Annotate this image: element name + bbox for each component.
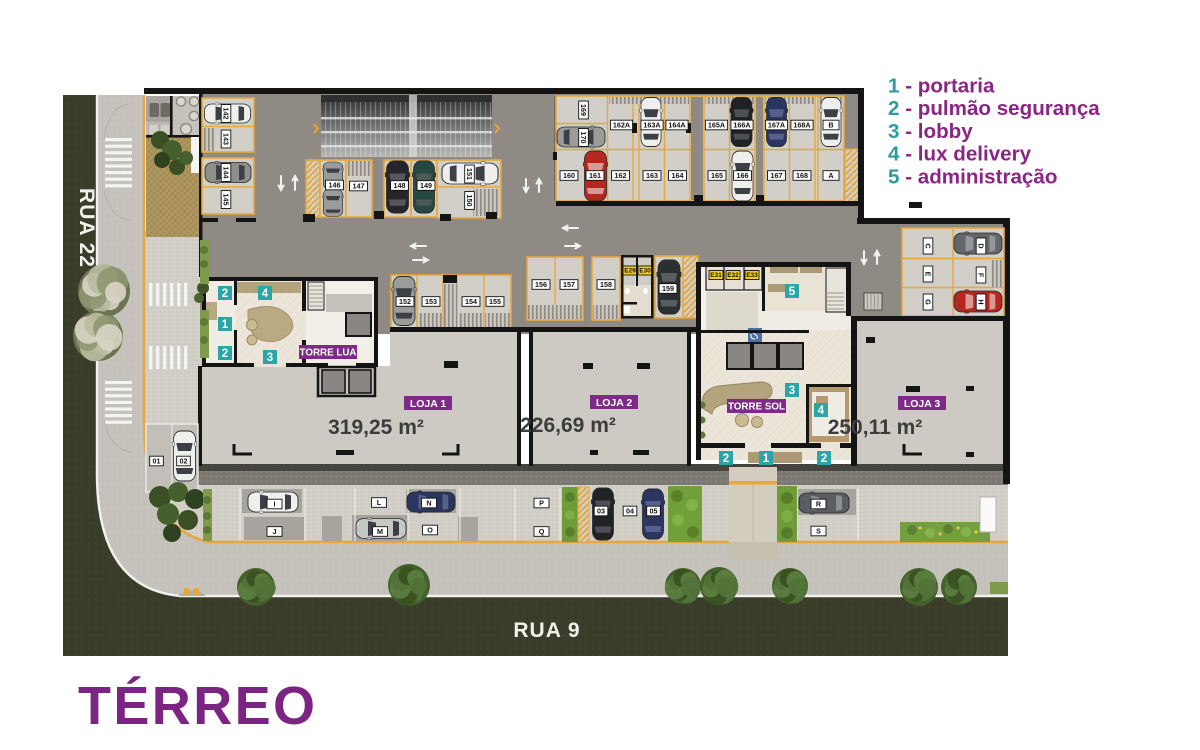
svg-text:144: 144 [222, 167, 231, 179]
svg-text:C: C [924, 243, 933, 248]
svg-text:B: B [828, 120, 833, 129]
svg-text:D: D [977, 243, 986, 248]
svg-text:N: N [426, 498, 431, 507]
svg-text:01: 01 [153, 456, 161, 465]
svg-text:LOJA 1: LOJA 1 [410, 398, 447, 410]
svg-text:3: 3 [789, 385, 795, 397]
svg-text:E31: E31 [710, 272, 722, 279]
svg-text:164: 164 [672, 171, 684, 180]
svg-text:F: F [977, 273, 986, 278]
svg-text:1: 1 [763, 453, 770, 465]
svg-text:04: 04 [626, 506, 634, 515]
svg-text:142: 142 [222, 108, 231, 120]
svg-text:163A: 163A [643, 120, 660, 129]
svg-text:150: 150 [465, 195, 474, 207]
svg-text:1 - portaria: 1 - portaria [888, 75, 995, 98]
svg-text:4 - lux delivery: 4 - lux delivery [888, 143, 1032, 166]
svg-text:166A: 166A [733, 120, 750, 129]
svg-text:P: P [539, 498, 544, 507]
svg-text:167A: 167A [768, 120, 785, 129]
svg-text:02: 02 [180, 456, 188, 465]
svg-text:L: L [377, 498, 382, 507]
svg-text:156: 156 [535, 280, 547, 289]
svg-text:TÉRREO: TÉRREO [78, 676, 317, 736]
svg-text:E: E [924, 272, 933, 277]
svg-text:2: 2 [222, 348, 228, 360]
svg-text:168: 168 [796, 171, 808, 180]
svg-text:154: 154 [465, 297, 477, 306]
svg-text:R: R [816, 499, 822, 508]
svg-text:LOJA 3: LOJA 3 [904, 398, 941, 410]
svg-text:167: 167 [771, 171, 783, 180]
svg-text:160: 160 [563, 171, 575, 180]
svg-text:J: J [273, 527, 277, 536]
svg-text:M: M [377, 527, 383, 536]
svg-text:149: 149 [420, 181, 432, 190]
svg-text:TORRE LUA: TORRE LUA [300, 348, 357, 359]
svg-text:05: 05 [650, 506, 658, 515]
svg-text:3 - lobby: 3 - lobby [888, 120, 973, 143]
svg-text:169: 169 [579, 104, 588, 116]
svg-text:155: 155 [489, 297, 501, 306]
svg-text:146: 146 [329, 180, 341, 189]
svg-text:1: 1 [222, 319, 229, 331]
svg-text:5 - administração: 5 - administração [888, 165, 1057, 188]
svg-text:161: 161 [589, 171, 601, 180]
svg-text:163: 163 [646, 171, 658, 180]
svg-text:153: 153 [425, 297, 437, 306]
svg-text:TORRE SOL: TORRE SOL [728, 402, 785, 413]
svg-text:143: 143 [222, 133, 231, 145]
svg-text:2: 2 [821, 453, 827, 465]
svg-text:03: 03 [597, 506, 605, 515]
svg-text:H: H [977, 299, 986, 304]
svg-text:2: 2 [723, 453, 729, 465]
svg-text:152: 152 [399, 297, 411, 306]
svg-text:A: A [828, 171, 833, 180]
svg-text:4: 4 [262, 288, 269, 300]
svg-text:4: 4 [818, 405, 825, 417]
svg-text:319,25 m²: 319,25 m² [328, 416, 424, 439]
svg-text:2: 2 [222, 288, 228, 300]
svg-text:170: 170 [579, 132, 588, 144]
svg-text:I: I [274, 499, 276, 508]
svg-text:165: 165 [711, 171, 723, 180]
svg-text:166: 166 [737, 171, 749, 180]
svg-text:148: 148 [394, 181, 406, 190]
svg-text:Q: Q [539, 527, 545, 536]
svg-text:G: G [924, 299, 933, 305]
svg-text:157: 157 [563, 280, 575, 289]
svg-text:145: 145 [222, 194, 231, 206]
svg-text:E33: E33 [746, 272, 758, 279]
svg-text:S: S [816, 526, 821, 535]
svg-text:159: 159 [662, 284, 674, 293]
svg-text:151: 151 [465, 168, 474, 180]
svg-text:5: 5 [789, 286, 796, 298]
svg-text:E30: E30 [639, 268, 651, 275]
svg-text:164A: 164A [668, 120, 685, 129]
svg-text:E29: E29 [624, 268, 636, 275]
svg-text:158: 158 [600, 280, 612, 289]
svg-text:250,11 m²: 250,11 m² [828, 416, 923, 439]
svg-text:162: 162 [615, 171, 627, 180]
svg-text:LOJA 2: LOJA 2 [596, 397, 633, 409]
svg-text:162A: 162A [613, 120, 630, 129]
svg-text:RUA 9: RUA 9 [513, 619, 580, 642]
svg-text:147: 147 [353, 181, 365, 190]
svg-text:2 - pulmão segurança: 2 - pulmão segurança [888, 97, 1100, 120]
svg-text:168A: 168A [793, 120, 810, 129]
svg-text:226,69 m²: 226,69 m² [520, 414, 616, 437]
svg-text:O: O [427, 525, 433, 534]
svg-text:RUA 22: RUA 22 [75, 188, 98, 268]
svg-text:3: 3 [267, 352, 273, 364]
svg-text:165A: 165A [708, 120, 725, 129]
svg-text:E32: E32 [727, 272, 739, 279]
